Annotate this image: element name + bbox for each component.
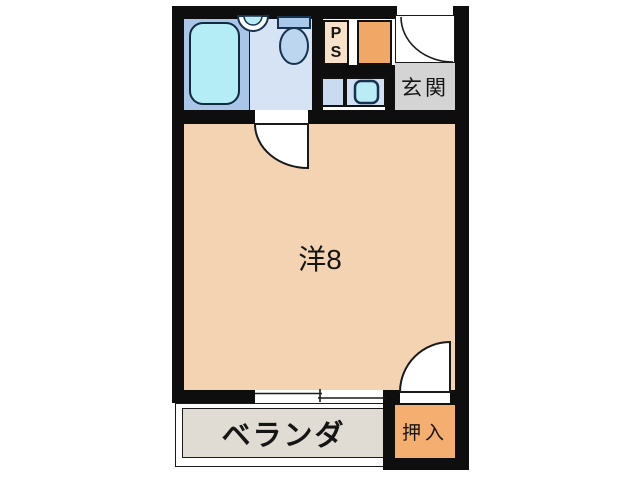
floor-plan: P S 玄関 ベランダ 押入 洋8 xyxy=(0,0,640,480)
wall-washroom-horizontal xyxy=(323,65,392,77)
pipe-space-label-line2: S xyxy=(331,43,342,62)
closet-floor: 押入 xyxy=(395,403,455,458)
entrance-floor: 玄関 xyxy=(395,63,455,110)
main-room-label-box: 洋8 xyxy=(260,240,380,276)
pipe-space-label-line1: P xyxy=(331,24,342,43)
sliding-window-opening xyxy=(255,390,385,403)
wall-bottom-left xyxy=(172,390,255,403)
main-room-label: 洋8 xyxy=(298,238,342,278)
toilet-room-floor xyxy=(249,15,312,110)
closet-label: 押入 xyxy=(402,418,448,445)
entrance-label: 玄関 xyxy=(401,72,449,102)
bathroom-floor xyxy=(184,15,249,110)
service-box xyxy=(357,20,392,65)
wall-mid-horizontal-b xyxy=(308,110,455,124)
pipe-space-box: P S xyxy=(323,20,349,65)
veranda-label: ベランダ xyxy=(221,412,345,454)
wall-left xyxy=(172,6,184,403)
washbox-right xyxy=(345,77,386,107)
closet-door-opening xyxy=(400,390,450,403)
wall-top-left xyxy=(172,6,397,19)
wall-mid-horizontal-a xyxy=(184,110,255,124)
veranda-floor: ベランダ xyxy=(182,408,385,458)
entrance-door-opening xyxy=(395,15,455,63)
washbox-left xyxy=(321,77,345,107)
